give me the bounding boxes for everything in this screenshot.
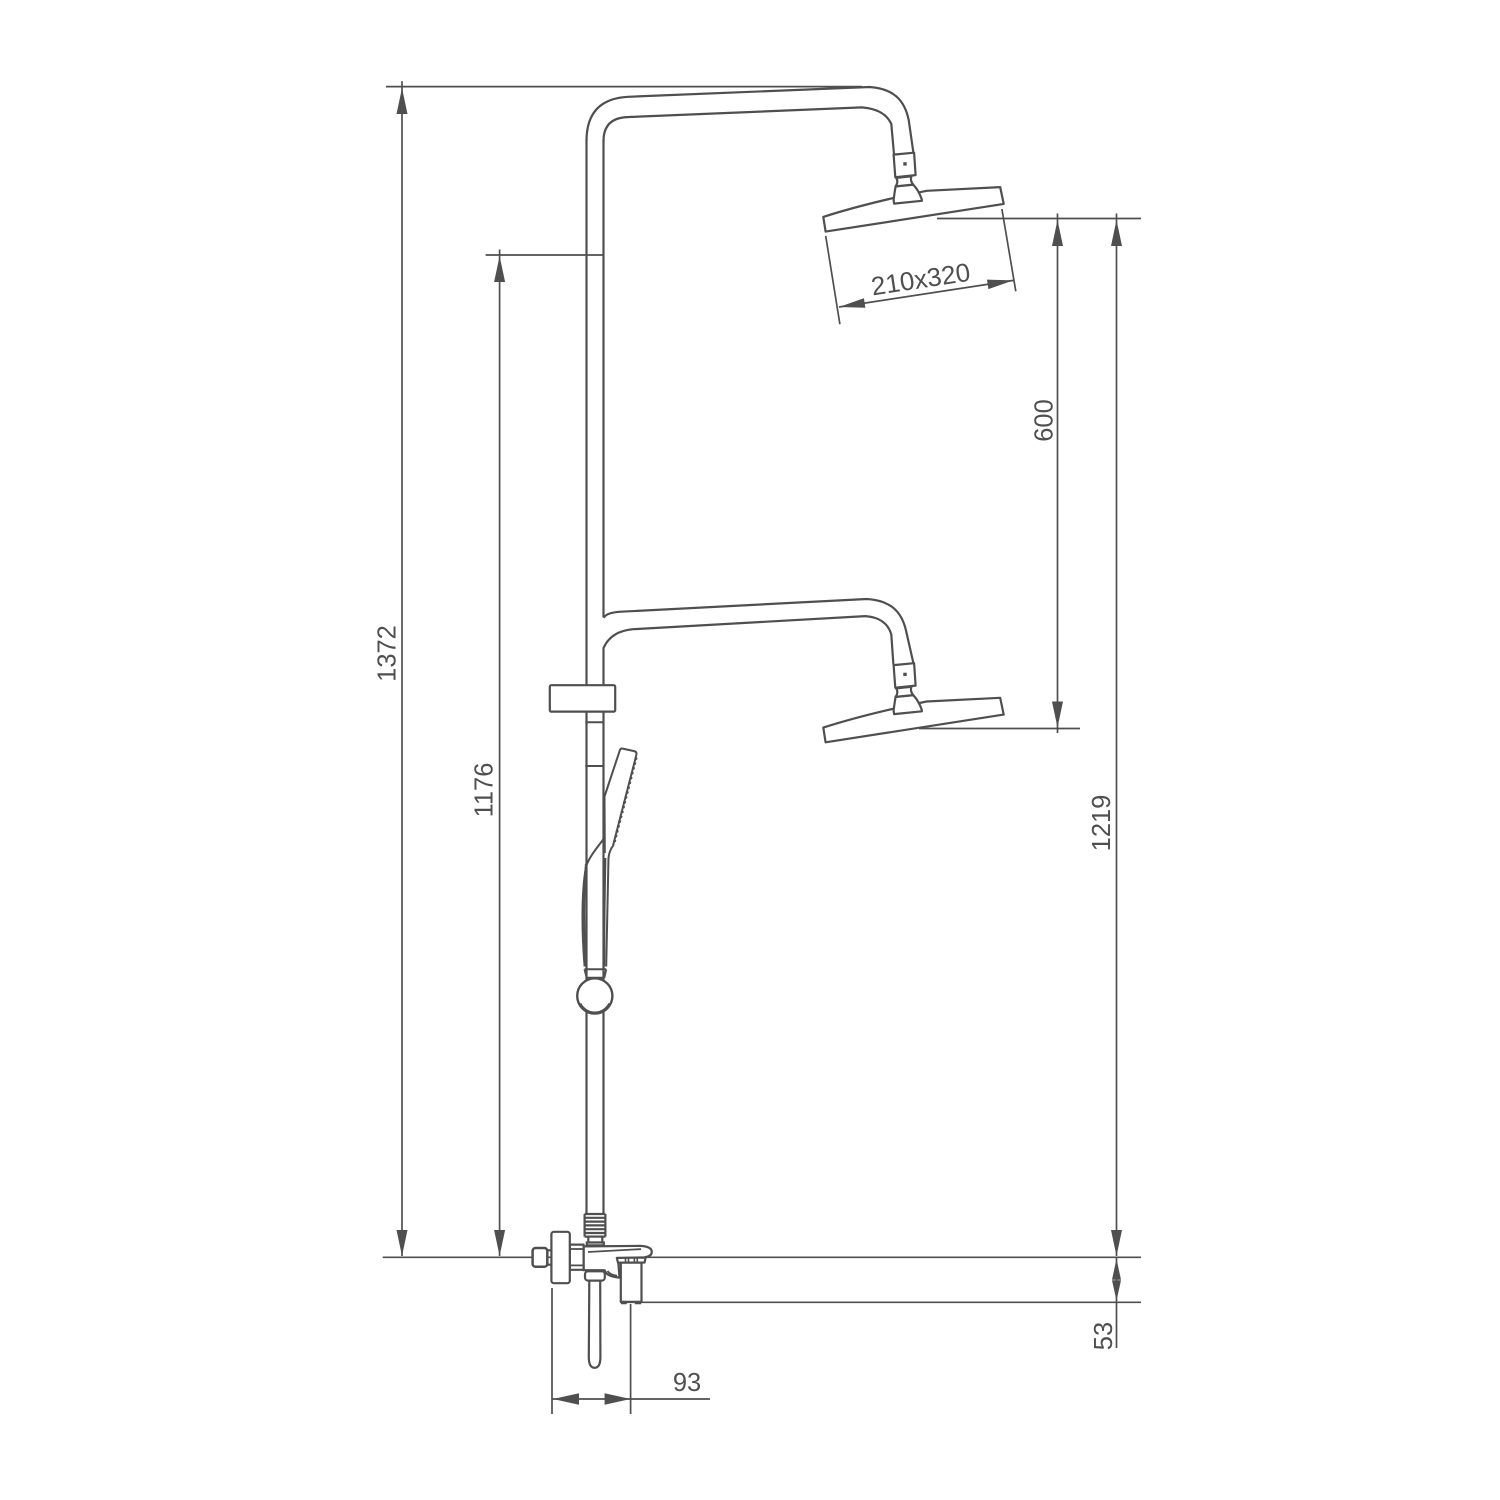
svg-text:600: 600 [1031, 399, 1059, 442]
svg-text:1176: 1176 [471, 763, 499, 818]
svg-text:93: 93 [673, 1369, 701, 1397]
svg-text:1219: 1219 [1088, 795, 1116, 852]
svg-text:53: 53 [1090, 1322, 1118, 1350]
svg-text:1372: 1372 [374, 625, 402, 682]
